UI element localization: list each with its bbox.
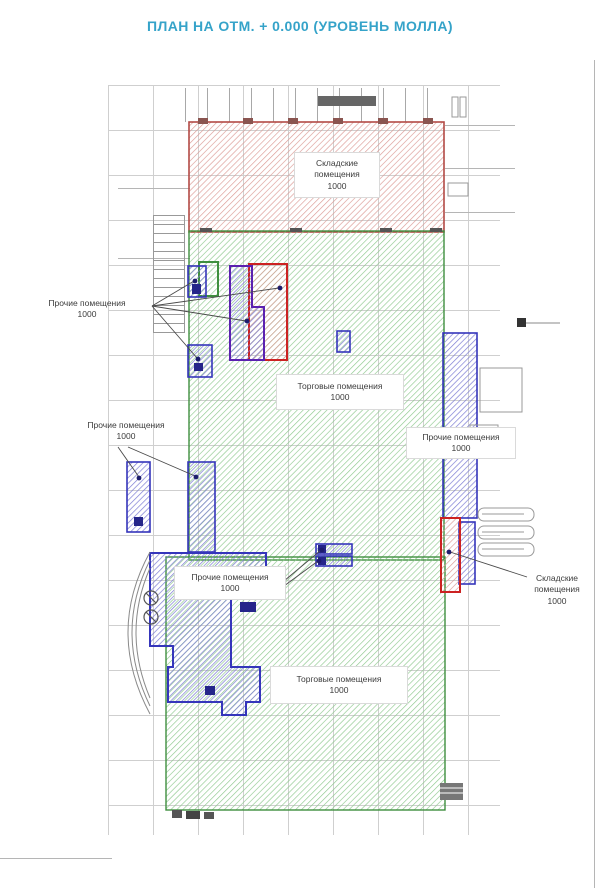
dock-band xyxy=(318,96,376,106)
label-value: 1000 xyxy=(330,685,349,696)
label-text: Складские помещения xyxy=(524,573,590,595)
label-other-left-upper: Прочие помещения 1000 xyxy=(20,294,154,324)
label-text: Складские помещения xyxy=(295,158,379,180)
label-value: 1000 xyxy=(331,392,350,403)
label-text: Прочие помещения xyxy=(422,432,499,443)
curved-facade xyxy=(128,552,150,714)
label-value: 1000 xyxy=(452,443,471,454)
label-other-left-mid: Прочие помещения 1000 xyxy=(64,416,188,446)
label-storage-right: Складские помещения 1000 xyxy=(524,563,590,617)
ref-dot xyxy=(517,318,526,327)
label-text: Прочие помещения xyxy=(191,572,268,583)
floor-plan-sheet: ПЛАН НА ОТМ. + 0.000 (УРОВЕНЬ МОЛЛА) xyxy=(0,0,600,888)
label-other-right: Прочие помещения 1000 xyxy=(406,427,516,459)
label-trade-upper: Торговые помещения 1000 xyxy=(276,374,404,410)
label-value: 1000 xyxy=(328,181,347,192)
plan-title: ПЛАН НА ОТМ. + 0.000 (УРОВЕНЬ МОЛЛА) xyxy=(0,18,600,34)
stair-block xyxy=(440,783,463,800)
label-value: 1000 xyxy=(221,583,240,594)
label-text: Прочие помещения xyxy=(87,420,164,431)
label-text: Торговые помещения xyxy=(298,381,383,392)
label-value: 1000 xyxy=(117,431,136,442)
label-value: 1000 xyxy=(548,596,567,607)
label-text: Прочие помещения xyxy=(48,298,125,309)
label-storage-top: Складские помещения 1000 xyxy=(294,152,380,198)
label-other-bottom-left: Прочие помещения 1000 xyxy=(174,566,286,600)
region-storage-right xyxy=(441,518,460,592)
label-trade-lower: Торговые помещения 1000 xyxy=(270,666,408,704)
label-value: 1000 xyxy=(78,309,97,320)
label-text: Торговые помещения xyxy=(297,674,382,685)
